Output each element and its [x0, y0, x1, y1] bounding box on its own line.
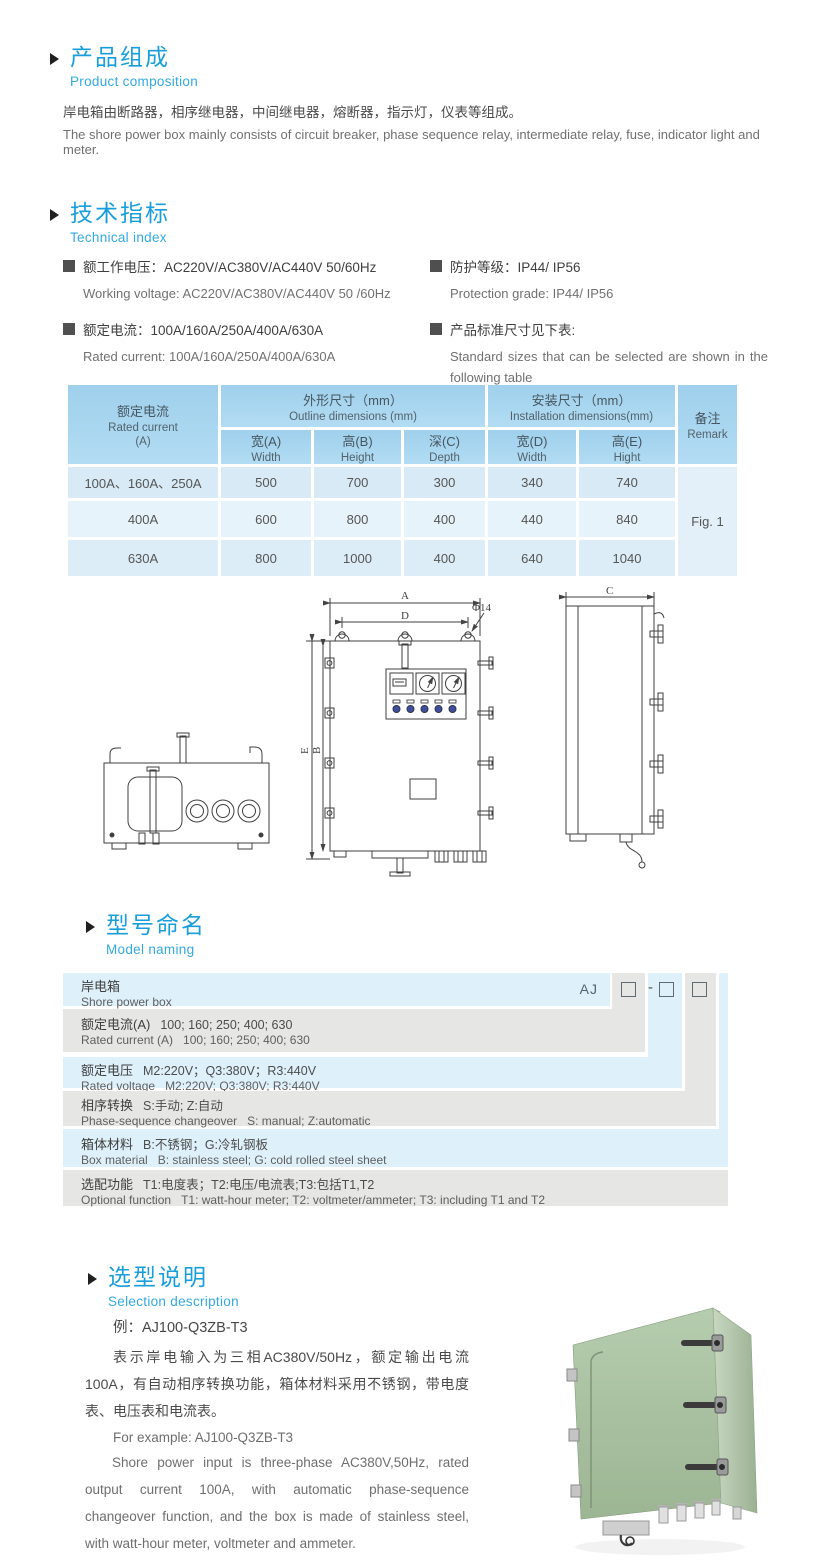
- section-arrow-icon: [88, 1273, 97, 1285]
- dim-label-d: D: [401, 610, 409, 622]
- col-header-installation: 安装尺寸（mm） Installation dimensions(mm): [488, 385, 675, 427]
- table-row: 400A 600 800 400 440 840: [68, 501, 737, 537]
- spec-item: 防护等级：IP44/ IP56: [430, 256, 762, 276]
- section-arrow-icon: [50, 209, 59, 221]
- dim-label-phi14: Φ14: [472, 602, 492, 614]
- composition-body-zh: 岸电箱由断路器，相序继电器，中间继电器，熔断器，指示灯，仪表等组成。: [63, 101, 783, 121]
- naming-row-current: 额定电流(A)100; 160; 250; 400; 630 Rated cur…: [63, 1009, 645, 1052]
- spec-item-en: Protection grade: IP44/ IP56: [450, 283, 762, 304]
- composition-body-en: The shore power box mainly consists of c…: [63, 127, 793, 157]
- col-header-remark: 备注 Remark: [678, 385, 737, 464]
- square-bullet-icon: [63, 323, 75, 335]
- code-box-icon: [621, 982, 636, 997]
- section-naming-header: 型号命名 Model naming: [86, 912, 206, 957]
- section-technical-header: 技术指标 Technical index: [50, 200, 170, 245]
- dimension-drawing: A D Φ14 E B C: [80, 584, 760, 884]
- section-title-en: Product composition: [70, 74, 198, 89]
- col-header-rated-current: 额定电流 Rated current (A): [68, 385, 218, 464]
- remark-cell: Fig. 1: [678, 467, 737, 576]
- col-subheader-height-b: 高(B)Height: [314, 430, 401, 464]
- spec-item-en: Working voltage: AC220V/AC380V/AC440V 50…: [83, 283, 423, 304]
- col-subheader-width-a: 宽(A)Width: [221, 430, 311, 464]
- dim-label-b: B: [311, 747, 323, 754]
- catalog-page: 产品组成 Product composition 岸电箱由断路器，相序继电器，中…: [0, 0, 830, 1568]
- spec-item: 额定电流：100A/160A/250A/400A/630A: [63, 319, 423, 339]
- selection-body-en: Shore power input is three-phase AC380V,…: [85, 1449, 469, 1557]
- section-selection-header: 选型说明 Selection description: [88, 1264, 239, 1309]
- section-arrow-icon: [86, 921, 95, 933]
- section-title-en: Model naming: [106, 942, 206, 957]
- size-table: 额定电流 Rated current (A) 外形尺寸（mm） Outline …: [65, 382, 740, 579]
- section-title-zh: 产品组成: [70, 44, 198, 70]
- spec-item: 额工作电压：AC220V/AC380V/AC440V 50/60Hz: [63, 256, 423, 276]
- square-bullet-icon: [430, 260, 442, 272]
- square-bullet-icon: [430, 323, 442, 335]
- naming-row-voltage: 额定电压M2:220V；Q3:380V；R3:440V Rated voltag…: [63, 1057, 682, 1088]
- model-naming-diagram: 岸电箱 Shore power box AJ 额定电流(A)100; 160; …: [63, 973, 728, 1206]
- table-row: 100A、160A、250A 500 700 300 340 740 Fig. …: [68, 467, 737, 498]
- section-arrow-icon: [50, 53, 59, 65]
- naming-row-material: 箱体材料B:不锈钢；G:冷轧钢板 Box materialB: stainles…: [63, 1129, 728, 1167]
- col-subheader-height-e: 高(E)Hight: [579, 430, 675, 464]
- section-title-zh: 型号命名: [106, 912, 206, 938]
- naming-row-optional: 选配功能T1:电度表；T2:电压/电流表;T3:包括T1,T2 Optional…: [63, 1170, 728, 1206]
- selection-example-zh: 例：AJ100-Q3ZB-T3: [113, 1316, 469, 1337]
- model-prefix: AJ: [580, 981, 598, 997]
- col-header-outline: 外形尺寸（mm） Outline dimensions (mm): [221, 385, 485, 427]
- naming-row-product: 岸电箱 Shore power box AJ: [63, 973, 610, 1006]
- dim-label-a: A: [401, 590, 409, 602]
- section-title-zh: 技术指标: [70, 200, 170, 226]
- spec-column-right: 防护等级：IP44/ IP56 Protection grade: IP44/ …: [430, 256, 762, 403]
- section-composition-header: 产品组成 Product composition: [50, 44, 198, 89]
- section-title-zh: 选型说明: [108, 1264, 239, 1290]
- selection-text-block: 例：AJ100-Q3ZB-T3 表示岸电输入为三相AC380V/50Hz，额定输…: [85, 1316, 469, 1557]
- selection-example-en: For example: AJ100-Q3ZB-T3: [113, 1430, 469, 1445]
- spec-item: 产品标准尺寸见下表:: [430, 319, 762, 339]
- spec-column-left: 额工作电压：AC220V/AC380V/AC440V 50/60Hz Worki…: [63, 256, 423, 382]
- code-box-icon: [659, 982, 674, 997]
- table-row: 630A 800 1000 400 640 1040: [68, 540, 737, 576]
- selection-body-zh: 表示岸电输入为三相AC380V/50Hz，额定输出电流100A，有自动相序转换功…: [85, 1344, 469, 1425]
- col-subheader-width-d: 宽(D)Width: [488, 430, 576, 464]
- section-title-en: Selection description: [108, 1294, 239, 1309]
- naming-row-phase: 相序转换S:手动; Z:自动 Phase-sequence changeover…: [63, 1091, 716, 1126]
- square-bullet-icon: [63, 260, 75, 272]
- product-photo: [545, 1295, 803, 1567]
- section-title-en: Technical index: [70, 230, 170, 245]
- col-subheader-depth-c: 深(C)Depth: [404, 430, 485, 464]
- spec-item-en: Rated current: 100A/160A/250A/400A/630A: [83, 346, 423, 367]
- code-box-icon: [692, 982, 707, 997]
- code-dash: -: [648, 979, 653, 996]
- dim-label-e: E: [299, 747, 311, 754]
- naming-code-column: [719, 973, 728, 1167]
- dim-label-c: C: [606, 585, 613, 597]
